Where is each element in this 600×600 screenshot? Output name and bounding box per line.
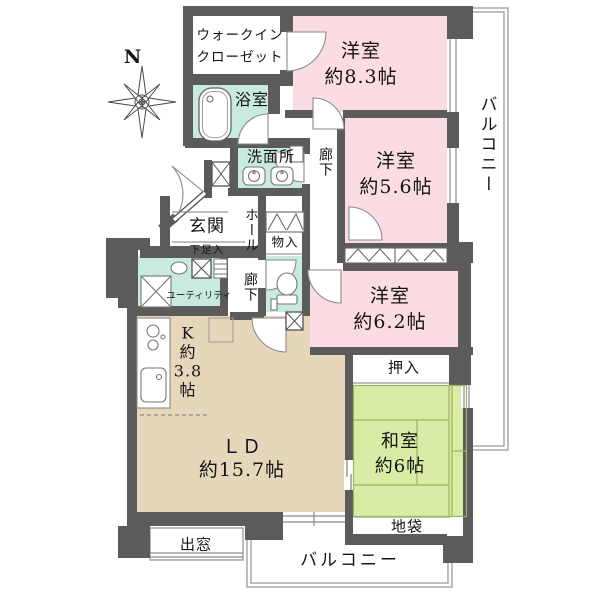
label-jibukuro: 地袋 <box>391 517 423 538</box>
label-western-room-2: 洋室 約5.6帖 <box>359 148 432 200</box>
sliding-door <box>344 460 354 490</box>
label-oshiire: 押入 <box>388 358 420 379</box>
label-north: N <box>124 44 142 70</box>
utility-shelf-icon <box>214 259 227 278</box>
label-washroom: 洗面所 <box>247 147 295 168</box>
wic-door-arc <box>287 32 326 71</box>
bathtub-icon <box>199 88 231 141</box>
label-corridor-upper: 廊下 <box>318 147 332 177</box>
label-utility: ユーティリティ <box>166 289 231 302</box>
label-bathroom: 浴室 <box>235 89 269 111</box>
bath-door-arc <box>238 114 268 144</box>
floorplan: ウォークイン クローゼット 浴室 洗面所 廊下 ホール 廊下 玄関 下足入 物入… <box>0 0 600 600</box>
label-bay-window: 出窓 <box>180 535 212 556</box>
label-western-room-1: 洋室 約8.3帖 <box>324 38 397 90</box>
floorplan-drawing <box>0 0 600 600</box>
refrigerator-space <box>209 318 233 342</box>
label-balcony-bottom: バルコニー <box>300 549 400 572</box>
kitchen-sink-icon <box>141 368 166 402</box>
label-living-dining: ＬＤ 約15.7帖 <box>199 436 285 482</box>
label-shoe-cabinet: 下足入 <box>190 243 225 257</box>
label-entrance: 玄関 <box>189 215 225 238</box>
western3-door-arc <box>308 270 341 303</box>
label-walk-in-closet: ウォークイン クローゼット <box>197 25 284 68</box>
label-western-room-3: 洋室 約6.2帖 <box>353 283 426 335</box>
label-kitchen: K 約 3.8 帖 <box>174 324 202 400</box>
label-hall: ホール <box>244 208 258 253</box>
label-corridor-lower: 廊下 <box>243 272 257 302</box>
compass-icon <box>108 66 176 138</box>
label-balcony-right: バルコニー <box>478 95 495 195</box>
western2-door-arc <box>349 207 382 240</box>
living-door-arc <box>252 318 286 352</box>
western1-door-arc <box>313 98 344 129</box>
utility-basin-icon <box>171 262 187 274</box>
label-japanese-room: 和室 約6帖 <box>375 430 425 480</box>
label-storage: 物入 <box>271 233 298 250</box>
